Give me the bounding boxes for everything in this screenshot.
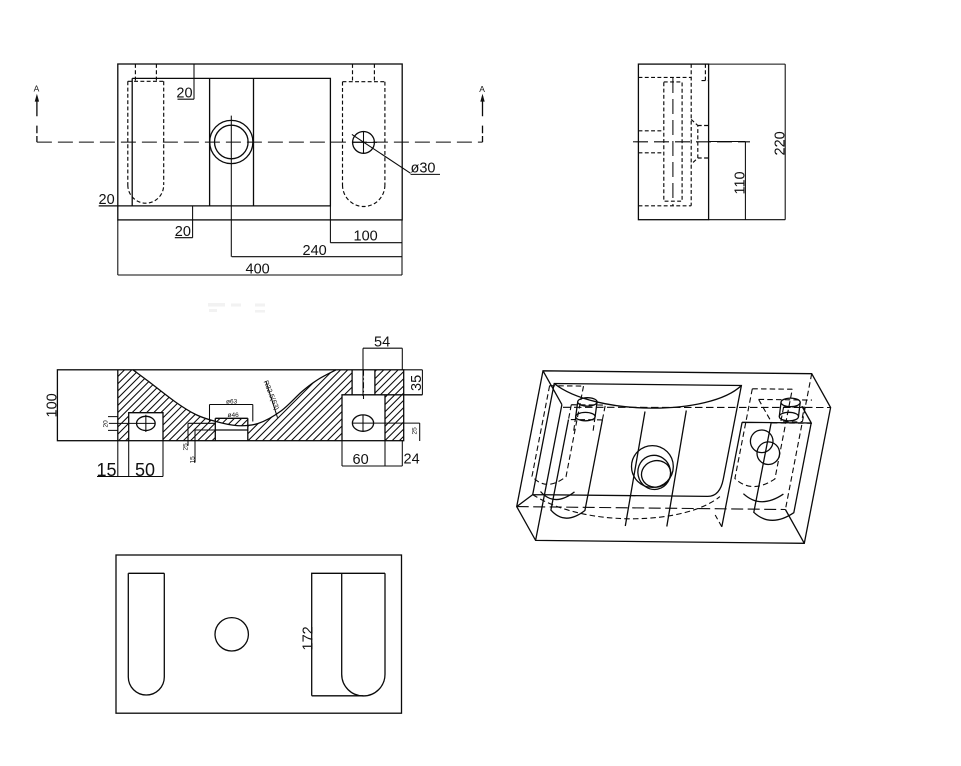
svg-text:400: 400 [246,261,270,277]
svg-text:35: 35 [409,375,425,391]
svg-text:60: 60 [353,452,369,468]
svg-text:240: 240 [303,243,327,259]
svg-text:25: 25 [412,427,419,435]
svg-text:15: 15 [97,460,117,480]
svg-text:ø46: ø46 [228,412,240,419]
svg-text:A: A [34,84,40,94]
svg-text:15: 15 [190,456,197,464]
svg-text:100: 100 [45,393,61,417]
svg-text:172: 172 [301,626,317,650]
svg-text:25: 25 [183,443,190,451]
svg-text:110: 110 [733,171,749,194]
svg-text:220: 220 [773,131,789,155]
svg-text:20: 20 [99,192,115,208]
svg-text:ø63: ø63 [226,398,238,405]
svg-text:54: 54 [374,335,390,351]
svg-text:100: 100 [354,229,378,245]
svg-text:20: 20 [102,420,109,428]
svg-text:A: A [479,84,485,94]
svg-text:24: 24 [404,451,420,467]
svg-text:50: 50 [135,460,155,480]
